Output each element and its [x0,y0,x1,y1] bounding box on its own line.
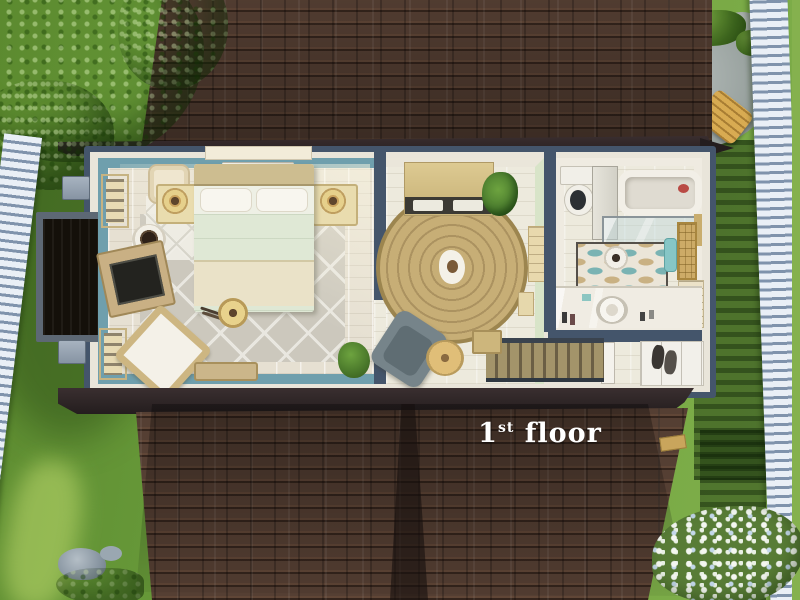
floor-label: 1st floor [460,418,620,460]
double-bed[interactable] [194,164,314,312]
table-lamp-left[interactable] [160,186,190,216]
interior-door[interactable] [528,226,545,282]
dresser[interactable] [404,162,494,216]
side-table[interactable] [426,340,464,376]
rock-small [100,546,122,561]
shrub[interactable] [56,568,144,600]
coat-closet[interactable] [640,341,704,386]
floor-label-number: 1 [478,418,498,449]
foot-bench[interactable] [194,362,258,381]
bed-pillow-right [256,188,308,212]
teal-towel[interactable] [664,238,677,272]
sink-basin [596,296,628,324]
window-top [205,146,312,160]
bed-pillow-left [200,188,252,212]
back-door[interactable] [677,222,697,280]
toilet-paper-stand[interactable] [604,246,628,270]
dresser-drawer-left [413,200,443,211]
potted-plant[interactable] [338,342,370,378]
dresser-drawer-right [453,200,483,211]
utility-box-lower[interactable] [58,340,86,364]
wall-divider-2 [544,152,556,332]
newel-post [472,330,502,354]
flower-bed[interactable] [652,506,800,600]
table-lamp-right[interactable] [318,186,348,216]
wall-art-upper[interactable] [101,174,129,228]
bathtub[interactable] [618,170,702,216]
picture-frame[interactable] [518,292,534,316]
bed-blanket [194,260,314,306]
bath-soap-red [678,184,689,193]
gutter-end [659,434,687,451]
floor-label-ordinal: st [498,420,514,436]
teal-box [582,294,591,301]
toilet-bowl-open [570,190,586,210]
counter-items [640,312,645,321]
utility-box-upper[interactable] [62,176,90,200]
floor-lamp[interactable] [218,298,248,328]
floor-label-word: floor [514,418,602,449]
grass-strip-beyond-fence [792,0,800,600]
game-viewport: 1st floor [0,0,800,600]
staircase[interactable] [486,338,604,382]
pet-toy-center [447,260,458,273]
vanity-sink[interactable] [556,286,702,328]
bed-headboard [194,164,314,186]
soap-bottles [562,312,567,323]
tv-screen [109,254,165,305]
